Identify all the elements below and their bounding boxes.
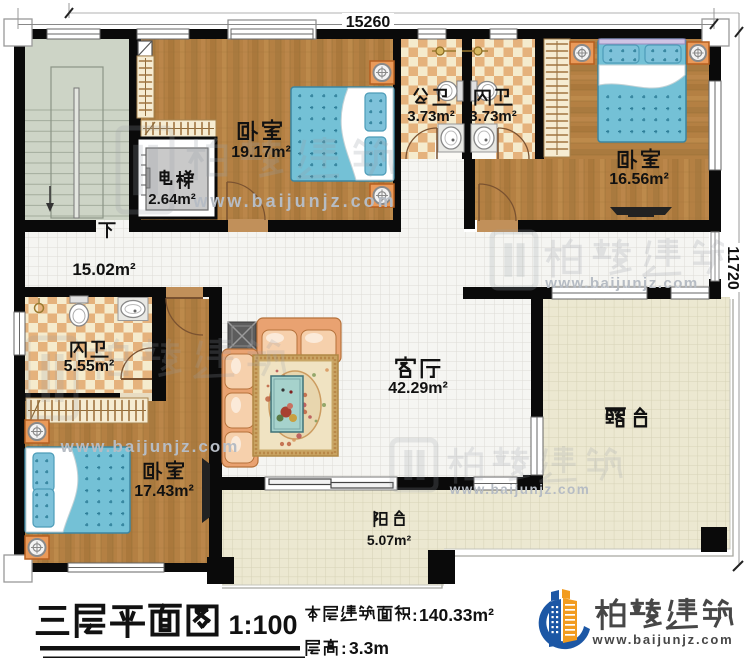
svg-text:www.baijunjz.com: www.baijunjz.com [60, 437, 240, 456]
svg-text:16.56m²: 16.56m² [609, 171, 669, 188]
svg-text:17.43m²: 17.43m² [134, 483, 194, 500]
svg-text:19.17m²: 19.17m² [231, 144, 291, 161]
svg-text:3.3m: 3.3m [349, 638, 389, 658]
svg-text::: : [341, 639, 347, 658]
svg-text:www.baijunjz.com: www.baijunjz.com [449, 482, 591, 497]
svg-text:5.07m²: 5.07m² [367, 532, 412, 548]
svg-text:15.02m²: 15.02m² [72, 260, 136, 279]
svg-text:3.73m²: 3.73m² [407, 108, 455, 125]
svg-text:www.baijunjz.com: www.baijunjz.com [544, 275, 698, 292]
svg-text:3.73m²: 3.73m² [469, 108, 517, 125]
svg-text:2.64m²: 2.64m² [148, 191, 196, 208]
svg-text:1:100: 1:100 [228, 610, 297, 640]
svg-text:www.baijunjz.com: www.baijunjz.com [192, 191, 396, 211]
svg-text:www.baijunjz.com: www.baijunjz.com [592, 632, 734, 647]
svg-text:140.33m²: 140.33m² [419, 605, 494, 625]
svg-text:11720: 11720 [724, 246, 741, 290]
svg-text:15260: 15260 [346, 14, 391, 31]
svg-text:5.55m²: 5.55m² [64, 358, 115, 375]
svg-text:42.29m²: 42.29m² [388, 380, 448, 397]
svg-text::: : [412, 606, 418, 625]
